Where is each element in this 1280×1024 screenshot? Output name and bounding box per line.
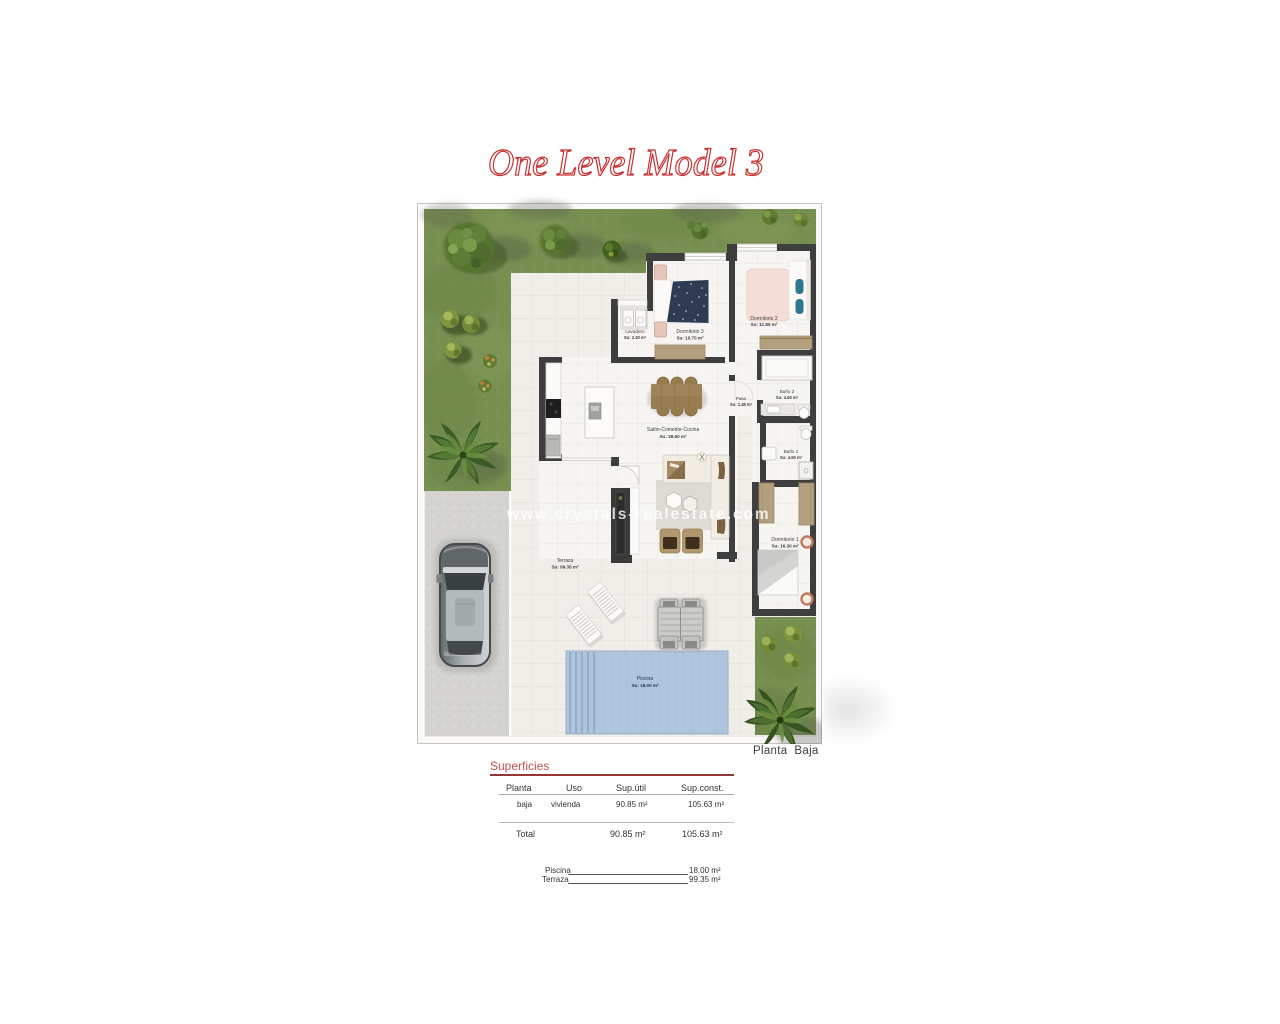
svg-text:Su: 16.30 m²: Su: 16.30 m²	[771, 544, 799, 549]
svg-text:Su: 38.60 m²: Su: 38.60 m²	[659, 434, 687, 439]
svg-text:Dormitorio 3: Dormitorio 3	[676, 329, 703, 335]
svg-text:Piscina: Piscina	[637, 676, 653, 682]
svg-text:Lavadero: Lavadero	[625, 329, 645, 334]
svg-text:Terraza: Terraza	[557, 558, 574, 564]
svg-text:Su: 11.85 m²: Su: 11.85 m²	[751, 322, 778, 327]
svg-text:Su: 4.60 m²: Su: 4.60 m²	[780, 455, 803, 460]
svg-text:Baño 1: Baño 1	[784, 449, 799, 454]
svg-text:Su: 18.00 m²: Su: 18.00 m²	[631, 683, 659, 688]
svg-text:Su: 10.75 m²: Su: 10.75 m²	[676, 336, 704, 341]
svg-text:Dormitorio 1: Dormitorio 1	[771, 537, 798, 543]
svg-text:Su: 2.40 m²: Su: 2.40 m²	[624, 335, 647, 340]
svg-text:Baño 2: Baño 2	[780, 389, 795, 394]
svg-text:Su: 4.60 m²: Su: 4.60 m²	[776, 395, 799, 400]
svg-text:Salón-Comedor-Cocina: Salón-Comedor-Cocina	[647, 427, 699, 433]
svg-text:Su: 99.35 m²: Su: 99.35 m²	[551, 565, 579, 570]
svg-text:Su: 1.45 m²: Su: 1.45 m²	[730, 402, 753, 407]
svg-text:Paso: Paso	[736, 396, 747, 401]
svg-text:One Level Model 3: One Level Model 3	[488, 142, 764, 184]
